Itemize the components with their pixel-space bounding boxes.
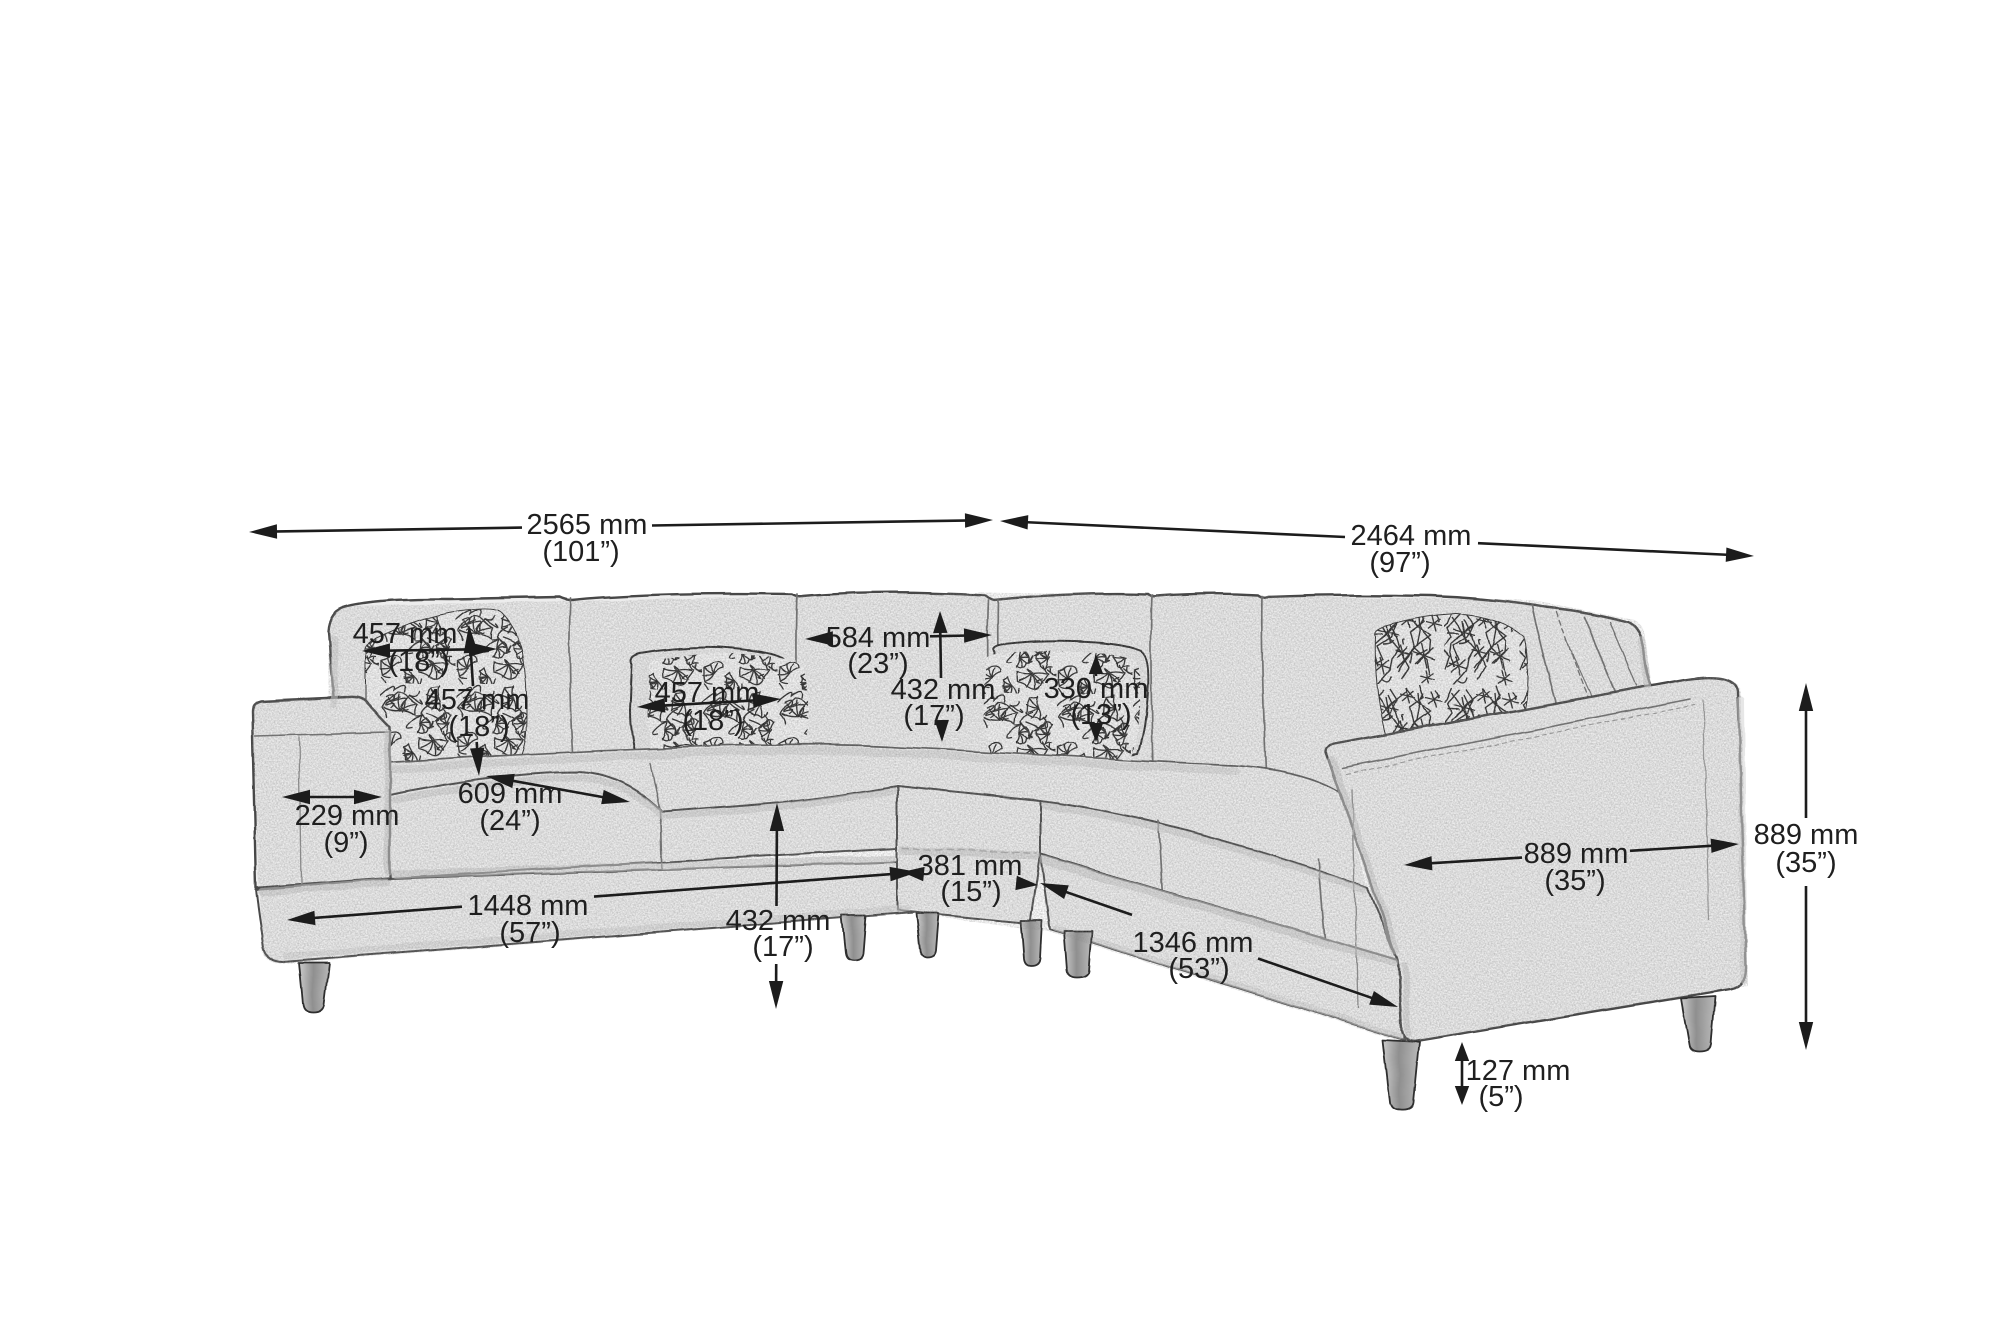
svg-text:(5”): (5”) [1478, 1081, 1523, 1113]
svg-text:(18”): (18”) [388, 646, 449, 678]
svg-text:(15”): (15”) [940, 876, 1001, 908]
svg-text:(18”): (18”) [448, 711, 509, 743]
svg-text:(24”): (24”) [479, 805, 540, 837]
svg-text:(18”): (18”) [682, 705, 743, 737]
svg-text:(17”): (17”) [903, 700, 964, 732]
svg-text:(13”): (13”) [1070, 699, 1131, 731]
svg-text:(97”): (97”) [1369, 547, 1430, 579]
svg-text:(101”): (101”) [542, 536, 619, 568]
svg-text:(53”): (53”) [1168, 953, 1229, 985]
svg-text:(57”): (57”) [499, 917, 560, 949]
svg-text:(9”): (9”) [323, 827, 368, 859]
svg-text:(35”): (35”) [1544, 865, 1605, 897]
svg-text:(35”): (35”) [1775, 847, 1836, 879]
svg-text:(17”): (17”) [752, 931, 813, 963]
